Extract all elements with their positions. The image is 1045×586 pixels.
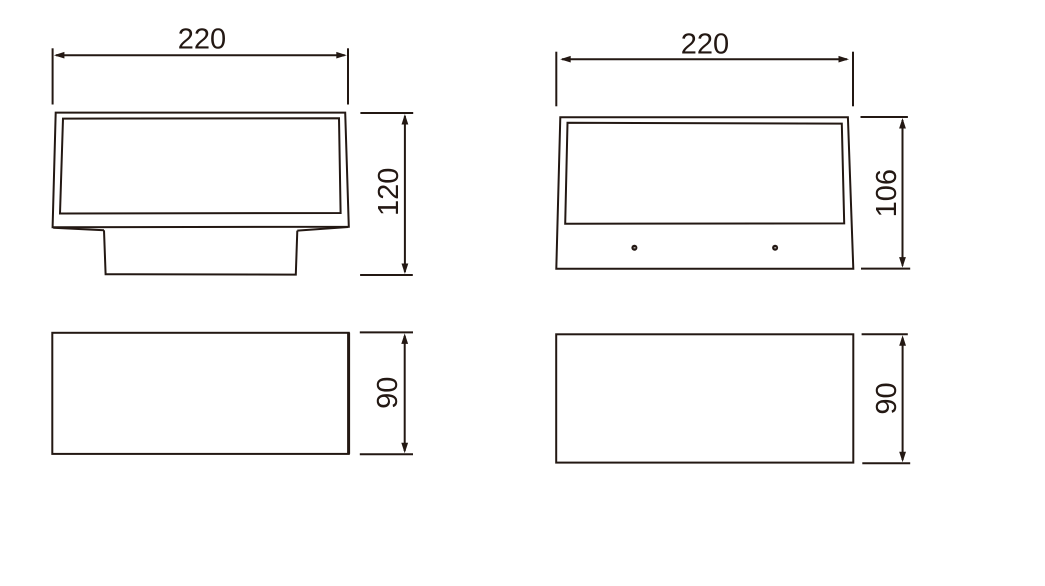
svg-text:90: 90	[372, 377, 404, 409]
svg-text:220: 220	[681, 28, 729, 60]
svg-text:220: 220	[178, 24, 226, 56]
svg-text:90: 90	[871, 382, 903, 414]
svg-text:120: 120	[373, 168, 405, 216]
svg-text:106: 106	[871, 169, 903, 217]
